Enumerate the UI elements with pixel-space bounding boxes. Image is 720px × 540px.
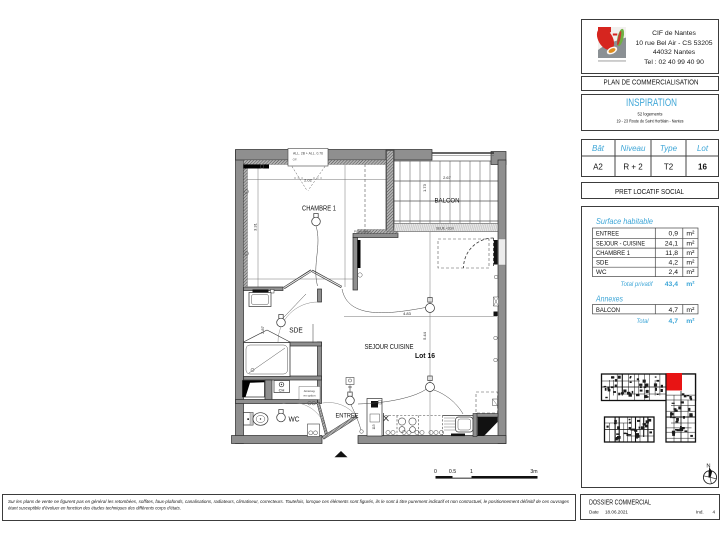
- svg-text:18.06.2021: 18.06.2021: [605, 510, 628, 515]
- svg-text:BALCON: BALCON: [435, 198, 460, 205]
- svg-text:0: 0: [434, 469, 437, 475]
- svg-text:SEUIL <2cm: SEUIL <2cm: [436, 227, 454, 231]
- svg-text:0.5: 0.5: [449, 469, 456, 475]
- svg-text:ALL. 2B + ALL. 0.76: ALL. 2B + ALL. 0.76: [293, 152, 323, 156]
- svg-text:2.67: 2.67: [443, 175, 452, 180]
- svg-text:CH: CH: [279, 388, 285, 393]
- svg-text:2.87: 2.87: [260, 325, 265, 334]
- svg-text:52 logements: 52 logements: [638, 112, 664, 117]
- svg-text:ENTREE: ENTREE: [336, 413, 360, 420]
- svg-text:19 - 23 Route de Saint Herblai: 19 - 23 Route de Saint Herblain - Nantes: [617, 118, 685, 123]
- svg-text:en option: en option: [304, 394, 316, 398]
- svg-text:Aménag.: Aménag.: [304, 389, 316, 393]
- svg-text:113: 113: [372, 424, 376, 429]
- svg-text:WC: WC: [289, 417, 300, 424]
- svg-text:OF.: OF.: [293, 158, 298, 162]
- svg-text:DOSSIER COMMERCIAL: DOSSIER COMMERCIAL: [589, 498, 651, 507]
- svg-text:4.83: 4.83: [403, 311, 412, 316]
- svg-text:Date: Date: [589, 510, 599, 515]
- svg-text:PLAN DE COMMERCIALISATION: PLAN DE COMMERCIALISATION: [604, 78, 699, 87]
- svg-text:4: 4: [713, 510, 716, 515]
- svg-text:étant susceptible d'évoluer en: étant susceptible d'évoluer en fonction …: [8, 506, 181, 511]
- svg-text:SEJOUR CUISINE: SEJOUR CUISINE: [365, 342, 414, 351]
- svg-text:INSPIRATION: INSPIRATION: [626, 97, 677, 109]
- svg-text:Ind.: Ind.: [696, 510, 704, 515]
- svg-text:Sur les plans de vente ne figu: Sur les plans de vente ne figurent pas e…: [8, 499, 570, 504]
- svg-text:2.02: 2.02: [304, 178, 313, 183]
- svg-text:CHAMBRE 1: CHAMBRE 1: [302, 204, 336, 213]
- svg-text:3.31: 3.31: [253, 222, 258, 231]
- svg-text:SDE: SDE: [289, 328, 303, 335]
- svg-text:PL.en option: PL.en option: [354, 230, 371, 234]
- svg-text:Lot 16: Lot 16: [415, 351, 435, 360]
- svg-text:1.73: 1.73: [422, 183, 427, 192]
- svg-text:3m: 3m: [530, 469, 537, 475]
- svg-text:1: 1: [470, 469, 473, 475]
- svg-text:PRET LOCATIF SOCIAL: PRET LOCATIF SOCIAL: [615, 187, 684, 196]
- svg-text:5.44: 5.44: [422, 331, 427, 340]
